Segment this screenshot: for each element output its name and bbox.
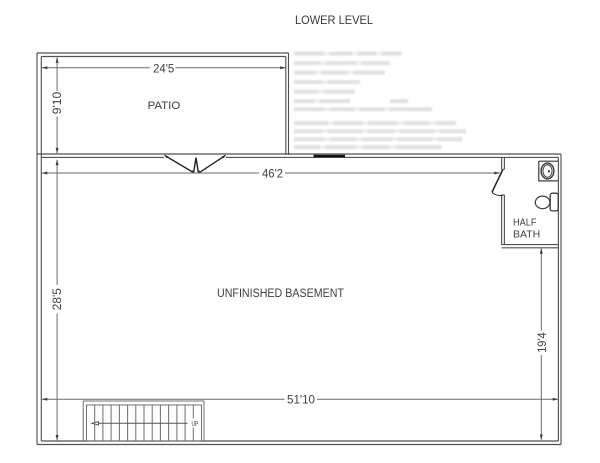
svg-text:UP: UP [192, 419, 199, 428]
svg-text:24'5: 24'5 [153, 61, 175, 75]
svg-text:PATIO: PATIO [148, 100, 181, 112]
svg-text:28'5: 28'5 [50, 288, 64, 310]
svg-text:19'4: 19'4 [535, 332, 549, 353]
svg-text:LOWER LEVEL: LOWER LEVEL [295, 13, 373, 27]
svg-text:UNFINISHED BASEMENT: UNFINISHED BASEMENT [217, 288, 344, 300]
svg-text:51'10: 51'10 [287, 392, 315, 406]
svg-text:BATH: BATH [513, 230, 540, 241]
svg-text:HALF: HALF [513, 218, 537, 229]
svg-text:46'2: 46'2 [262, 167, 283, 181]
svg-text:9'10: 9'10 [50, 91, 64, 114]
